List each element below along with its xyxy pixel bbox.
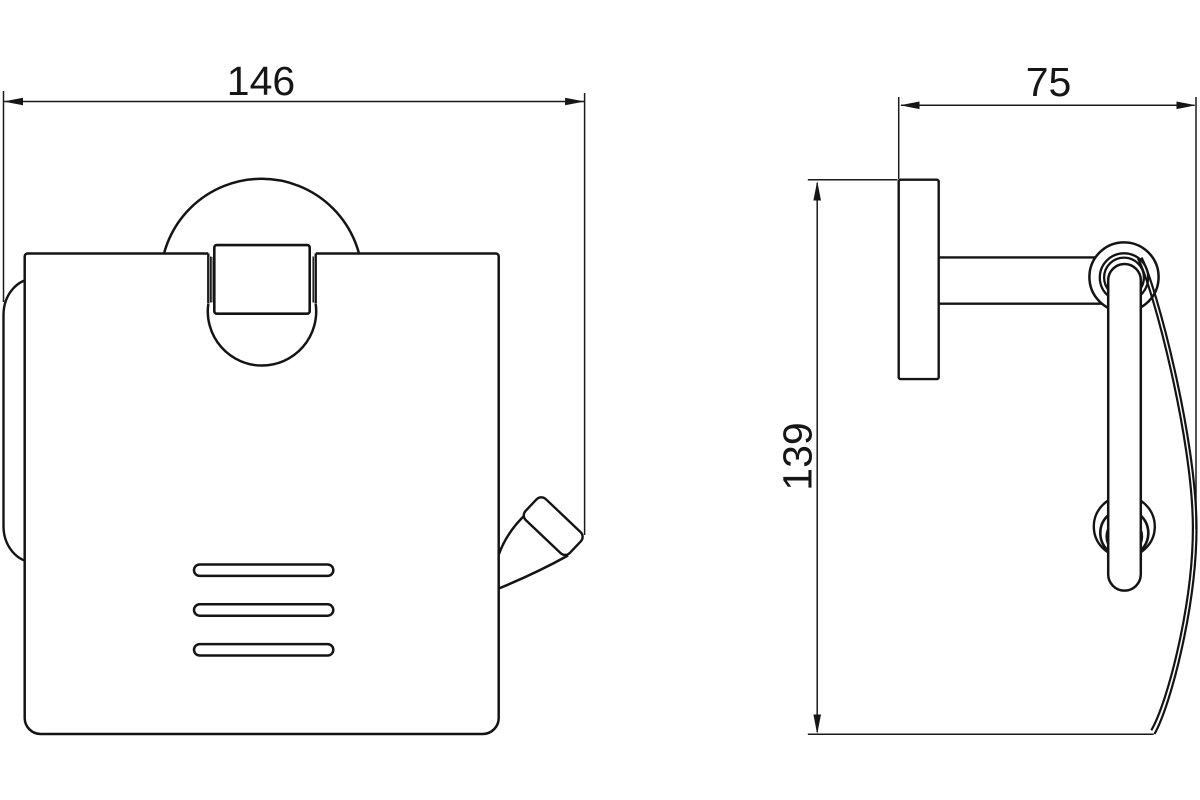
svg-text:75: 75 [1026,59,1072,105]
svg-text:146: 146 [227,58,295,104]
svg-text:139: 139 [775,422,821,490]
